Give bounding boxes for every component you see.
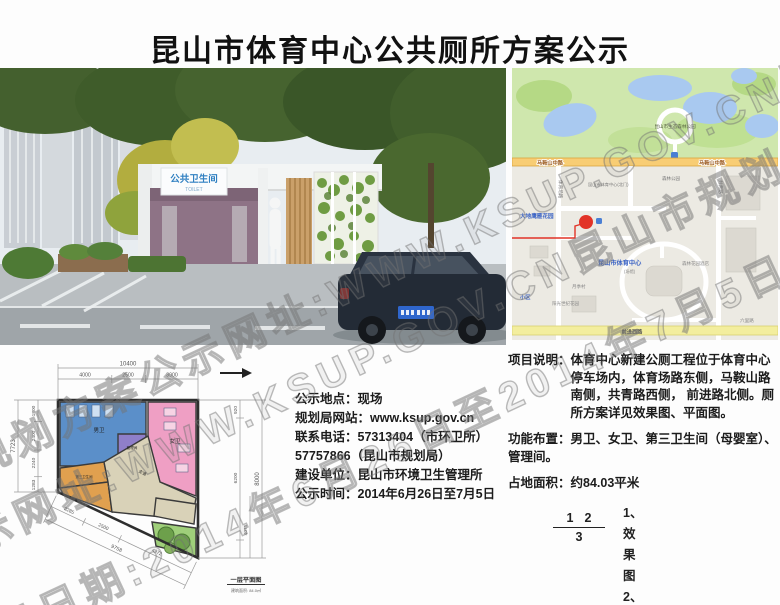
map-park: 昆山市生态森林公园 xyxy=(512,68,778,160)
floor-plan-svg: 男卫 女卫 管理间 第三卫生间 走道 xyxy=(6,346,306,604)
dim-left-total: 7723 xyxy=(11,439,17,453)
map-road-qianjin: 前进西路 xyxy=(512,326,778,336)
toilet-sign: 公共卫生间 TOILET xyxy=(161,168,227,195)
door xyxy=(232,206,247,262)
legend-num-2: 2 xyxy=(579,511,597,525)
dim-top-2: 2500 xyxy=(122,373,134,379)
project-desc-label: 项目说明： xyxy=(508,352,571,422)
map-label-liuli: 六里路 xyxy=(740,317,754,324)
dim-left-4: 1283 xyxy=(31,479,37,490)
legend-num-1: 1 xyxy=(561,511,579,525)
toilet-sign-subtitle: TOILET xyxy=(185,187,202,193)
notice-poster: 昆山市体育中心公共厕所方案公示 xyxy=(0,0,780,605)
notice-block: 公示地点：现场 规划局网站：www.ksup.gov.cn 联系电话：57313… xyxy=(295,390,513,504)
location-map-svg: 昆山市生态森林公园 马鞍山中路 马鞍山中路 xyxy=(512,68,778,340)
map-label-mashan-right: 马鞍山中路 xyxy=(699,159,726,167)
label-women: 女卫 xyxy=(169,437,181,445)
dim-right-1: 920 xyxy=(233,406,239,414)
car xyxy=(333,252,506,344)
map-label-yueji: 月季村 xyxy=(572,283,586,290)
page-title: 昆山市体育中心公共厕所方案公示 xyxy=(0,26,780,70)
legend-item-rendering: 1、效果图 xyxy=(623,503,642,587)
map-road-mashan: 马鞍山中路 马鞍山中路 xyxy=(512,158,778,167)
dim-left-3: 2240 xyxy=(31,457,37,468)
map-label-north-gate: 昆山市体育中心(北门) xyxy=(588,181,629,188)
wood-slat-wall xyxy=(286,178,312,264)
map-label-tiyuchang: 体育场路 xyxy=(557,180,564,199)
map-label-mashan-left: 马鞍山中路 xyxy=(537,159,564,167)
map-label-sports-center: 昆山市体育中心 xyxy=(598,259,642,267)
door xyxy=(162,206,177,262)
dim-left-2: 2400 xyxy=(31,430,37,441)
plan-caption: 一层平面图 建筑面积: 84.0㎡ xyxy=(227,576,265,593)
dim-right-3: 8000 xyxy=(255,472,261,486)
rendering-photo-svg: 公共卫生间 TOILET xyxy=(0,68,506,345)
plan-area-note: 建筑面积: 84.0㎡ xyxy=(231,587,261,593)
label-men: 男卫 xyxy=(93,427,105,434)
notice-phone-2: 57757866（昆山市规划局） xyxy=(295,447,513,466)
map-label-park: 昆山市生态森林公园 xyxy=(654,123,696,130)
map-label-qianjin: 前进西路 xyxy=(622,328,644,336)
map-label-gongqing: 共青路 xyxy=(717,180,724,194)
project-desc-body: 体育中心新建公厕工程位于体育中心停车场内，体育场路东侧，马鞍山路南侧，共青路西侧… xyxy=(571,352,778,422)
project-block: 项目说明： 体育中心新建公厕工程位于体育中心停车场内，体育场路东侧，马鞍山路南侧… xyxy=(508,352,778,493)
dim-top-1: 4000 xyxy=(79,373,91,379)
dim-top-total: 10400 xyxy=(120,362,137,368)
plan-caption-text: 一层平面图 xyxy=(231,576,262,584)
toilet-sign-title: 公共卫生间 xyxy=(170,173,218,185)
map-label-hotel: 森林花园酒店 xyxy=(682,260,709,267)
dim-left-1: 1800 xyxy=(31,405,37,416)
map-label-xiaoqu: 小区 xyxy=(520,293,531,301)
project-features: 功能布置：男卫、女卫、第三卫生间（母婴室）、管理间。 xyxy=(508,431,778,466)
floor-plan: 男卫 女卫 管理间 第三卫生间 走道 xyxy=(6,346,306,604)
legend-divider xyxy=(553,527,605,528)
north-arrow-icon xyxy=(220,368,252,378)
dim-right-4: 4075 xyxy=(243,524,249,535)
map-label-dadi: 大地鹰雁花园 xyxy=(520,212,554,220)
dim-top-3: 3900 xyxy=(166,373,178,379)
map-label-sports-center-sub: (场馆) xyxy=(624,268,636,275)
notice-website: 规划局网站：www.ksup.gov.cn xyxy=(295,409,513,428)
label-third: 第三卫生间 xyxy=(76,474,94,479)
dim-right-2: 6200 xyxy=(233,472,239,483)
notice-builder: 建设单位：昆山市环境卫生管理所 xyxy=(295,466,513,485)
legend-fraction: 12 3 xyxy=(553,511,605,544)
legend-num-3: 3 xyxy=(553,530,605,544)
notice-location: 公示地点：现场 xyxy=(295,390,513,409)
bus-icon xyxy=(596,218,602,224)
toilet-building: 公共卫生间 TOILET xyxy=(138,164,382,266)
location-map: 昆山市生态森林公园 马鞍山中路 马鞍山中路 xyxy=(512,68,778,340)
label-mgmt: 管理间 xyxy=(127,445,138,450)
notice-phone-1: 联系电话：57313404（市环卫所） xyxy=(295,428,513,447)
project-area: 占地面积：约84.03平米 xyxy=(508,475,778,493)
living-wall xyxy=(314,172,378,264)
notice-period: 公示时间：2014年6月26日至7月5日 xyxy=(295,485,513,504)
legend-item-location: 2、位置图 xyxy=(623,587,642,605)
rendering-photo: 公共卫生间 TOILET xyxy=(0,68,506,345)
map-label-yangguang: 阳光世纪花园 xyxy=(552,300,579,307)
map-label-bus-stop: 森林公园 xyxy=(662,175,680,182)
